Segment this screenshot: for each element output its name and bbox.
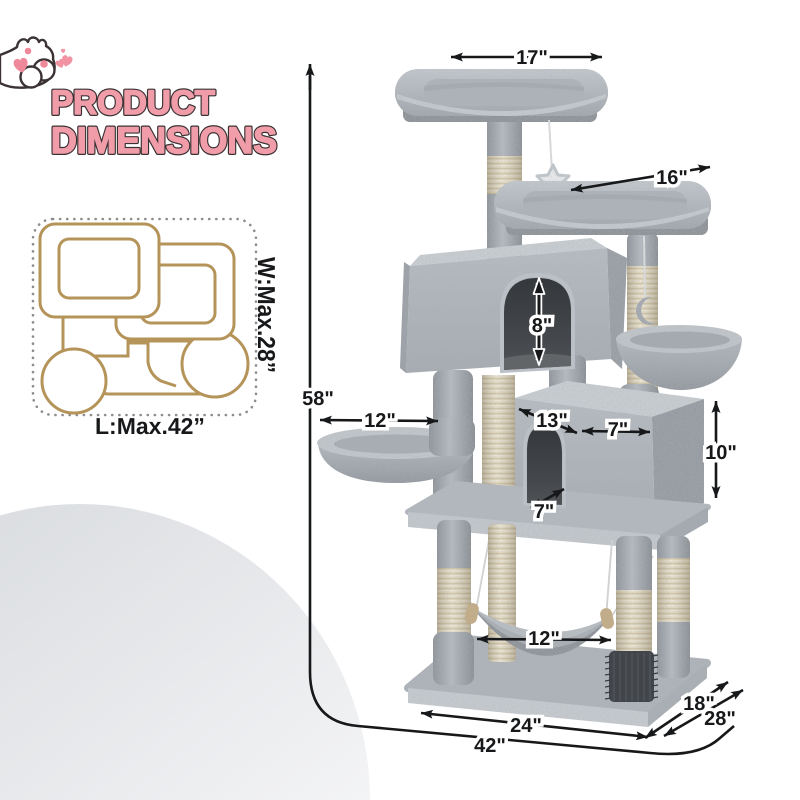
svg-text:L:Max.42”: L:Max.42”	[95, 413, 205, 439]
svg-text:12": 12"	[364, 410, 396, 432]
svg-text:12": 12"	[528, 628, 560, 650]
svg-text:17": 17"	[516, 47, 548, 69]
svg-text:7": 7"	[534, 501, 555, 523]
svg-text:DIMENSIONS: DIMENSIONS	[51, 120, 277, 161]
svg-text:13": 13"	[536, 410, 568, 432]
svg-text:8": 8"	[532, 315, 553, 337]
svg-text:28": 28"	[704, 708, 736, 730]
svg-text:58": 58"	[302, 388, 334, 410]
svg-text:7": 7"	[608, 419, 629, 441]
svg-text:10": 10"	[705, 442, 737, 464]
svg-text:24": 24"	[510, 715, 542, 737]
svg-text:W:Max.28”: W:Max.28”	[252, 257, 279, 373]
svg-text:16": 16"	[656, 167, 688, 189]
svg-text:42": 42"	[474, 735, 506, 757]
svg-text:PRODUCT: PRODUCT	[51, 84, 215, 122]
